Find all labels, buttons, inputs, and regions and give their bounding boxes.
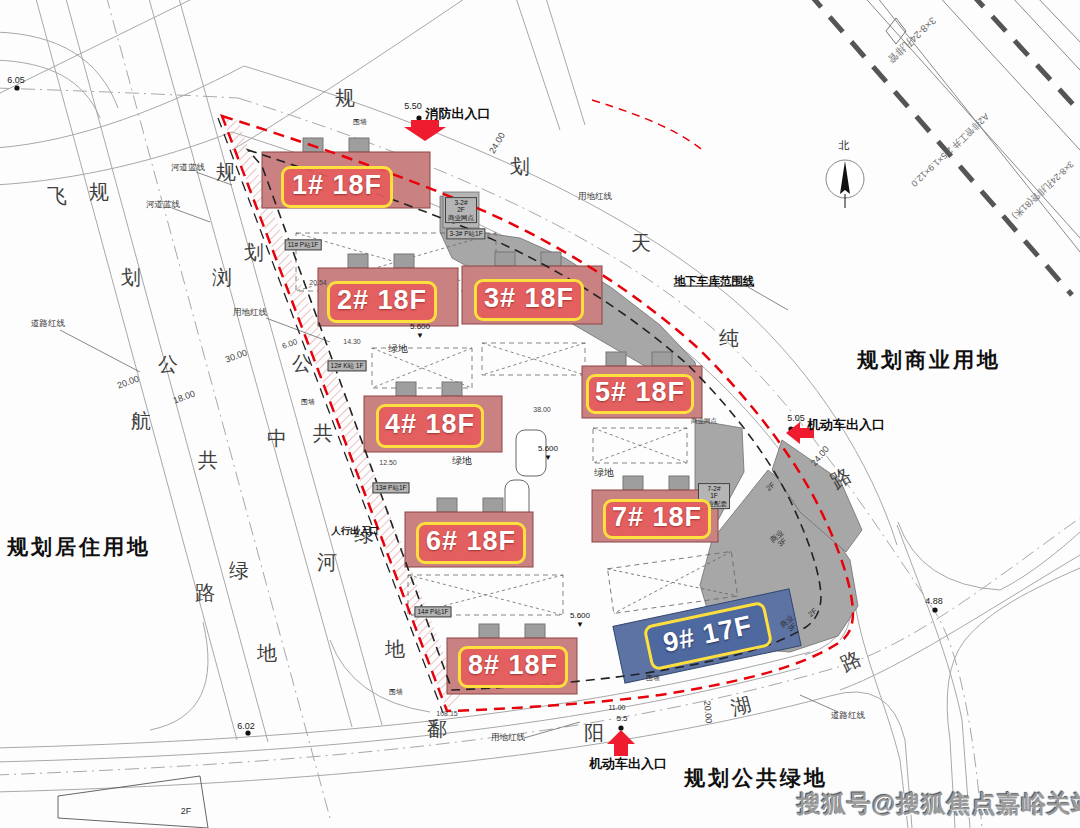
label-rc: 浏 — [212, 266, 232, 288]
vehicle-entrance-south-label: 机动车出入口 — [589, 757, 667, 772]
building-badge-7: 7# 18F — [603, 499, 711, 539]
label-rc: 纯 — [719, 327, 739, 349]
label-lvl: 5.600 ▼ — [570, 612, 590, 630]
label-dim: 30.00 — [224, 347, 249, 364]
label-rc: 公 — [158, 353, 178, 375]
label-rc: 规 — [89, 181, 109, 203]
label-rc: 划 — [510, 155, 530, 177]
label-rc: 飞 — [47, 185, 67, 207]
label-tiny: 2F — [807, 607, 819, 619]
label-dim: 20.54 — [309, 279, 327, 287]
label-dim: 20.00 — [116, 373, 141, 390]
label-sm: 河道蓝线 — [171, 163, 205, 173]
building-badge-4: 4# 18F — [376, 404, 484, 448]
label-rc: 公 — [292, 352, 312, 374]
label-elev: 6.02 — [237, 721, 255, 731]
label-rc: 绿 — [229, 559, 249, 581]
label-rc: 天 — [631, 232, 651, 254]
label-tiny: 商业 3F — [779, 614, 801, 636]
label-box: 14# P站1F — [414, 606, 451, 617]
label-sm: 用地红线 — [491, 733, 525, 743]
building-badge-5: 5# 18F — [586, 374, 694, 414]
label-tiny: 2F — [765, 481, 777, 493]
site-plan-page: 飞规划公共绿路地航规划浏公中共绿河地鄱阳湖路规划天纯路规划居住用地规划商业用地规… — [0, 0, 1080, 828]
label-dim: 14.30 — [343, 338, 361, 346]
building-badge-1: 1# 18F — [281, 166, 393, 208]
label-sm: 围墙 — [389, 688, 403, 696]
label-rc: 地 — [257, 642, 277, 664]
label-box: 3-3# P站1F — [446, 228, 485, 239]
label-sm: 道路红线 — [31, 319, 65, 329]
label-planned-commercial: 规划商业用地 — [857, 348, 1001, 372]
label-rc: 规 — [335, 87, 355, 109]
building-badge-8: 8# 18F — [458, 646, 568, 688]
label-dim: 24.00 — [809, 444, 831, 468]
label-elev: 6.05 — [7, 75, 25, 85]
label-dim: 12.50 — [379, 459, 397, 467]
label-pipe: 3×8-24孔排管 — [886, 15, 939, 65]
label-rc: 路 — [195, 582, 215, 604]
label-sm: 用地红线 — [578, 192, 612, 202]
north-label: 北 — [839, 140, 850, 152]
label-rc: 鄱 — [427, 718, 447, 740]
annotation-layer: 飞规划公共绿路地航规划浏公中共绿河地鄱阳湖路规划天纯路规划居住用地规划商业用地规… — [0, 0, 1080, 828]
label-elev: 4.88 — [925, 596, 943, 606]
label-tiny: 商业 3F — [769, 529, 791, 551]
label-dim: 20.00 — [702, 700, 714, 723]
label-lvl: 5.600 ▼ — [538, 445, 558, 463]
label-planned-green: 规划公共绿地 — [684, 766, 828, 790]
label-sm: 绿地 — [388, 343, 408, 354]
label-sm: 用地红线 — [233, 308, 267, 318]
label-rc: 划 — [244, 241, 264, 263]
label-dim: 108.15 — [436, 710, 457, 718]
label-sm: 河道蓝线 — [146, 200, 180, 210]
building-badge-2: 2# 18F — [327, 281, 437, 323]
label-rc: 地 — [385, 638, 405, 660]
vehicle-entrance-east-label: 机动车出入口 — [807, 418, 885, 433]
label-planned-residential: 规划居住用地 — [7, 535, 151, 559]
label-dim: 18.00 — [172, 388, 197, 405]
label-rc: 阳 — [584, 722, 604, 744]
label-dim: 38.00 — [533, 406, 551, 414]
label-rc: 规 — [216, 161, 236, 183]
label-rc: 路 — [827, 463, 856, 492]
label-lvl: 5.600 ▼ — [410, 323, 430, 341]
label-sm: 围墙 — [301, 398, 315, 406]
fire-exit-label: 消防出入口 — [426, 107, 491, 122]
label-rc: 河 — [317, 551, 337, 573]
building-badge-3: 3# 18F — [474, 279, 584, 321]
watermark: 搜狐号@搜狐焦点嘉峪关站 — [797, 788, 1080, 820]
label-rc: 路 — [837, 647, 865, 676]
label-box: 11# P站1F — [285, 239, 322, 250]
label-rc: 共 — [313, 422, 333, 444]
label-sm: 围墙 — [646, 674, 660, 682]
label-rc: 共 — [198, 449, 218, 471]
label-elev: 5.5 — [616, 715, 627, 724]
label-elev: 11.00 — [609, 704, 626, 712]
building-badge-9: 9# 17F — [643, 601, 774, 672]
label-rc: 中 — [267, 427, 287, 449]
label-tiny: 2F — [181, 806, 192, 816]
label-sm: 绿地 — [452, 455, 472, 466]
label-box: 3-2# 2F 商业网点 — [445, 197, 477, 223]
label-pipe: A2排管工井 2.5×1.9×12.0 — [909, 111, 991, 188]
label-box: 12# K站 1F — [328, 360, 367, 371]
label-sm: 围墙 — [353, 118, 367, 126]
label-pipe: 3×8-24孔排管(81米) — [1010, 159, 1076, 221]
pedestrian-entrance-label: 人行出入口 — [331, 526, 379, 537]
label-dim: 24.00 — [487, 131, 507, 156]
label-rc: 湖 — [728, 693, 753, 720]
label-tiny: 商业网点 — [691, 417, 717, 424]
label-elev: 5.50 — [404, 101, 422, 111]
label-rc: 划 — [121, 266, 141, 288]
building-badge-6: 6# 18F — [416, 522, 526, 564]
label-rc: 航 — [131, 410, 151, 432]
label-box: 13# P站1F — [372, 482, 409, 493]
garage-boundary-label: 地下车库范围线 — [674, 275, 755, 288]
label-dim: 6.00 — [281, 338, 299, 352]
label-sm: 道路红线 — [831, 711, 865, 721]
label-sm: 绿地 — [594, 467, 614, 478]
label-elev: 5.05 — [787, 413, 805, 423]
